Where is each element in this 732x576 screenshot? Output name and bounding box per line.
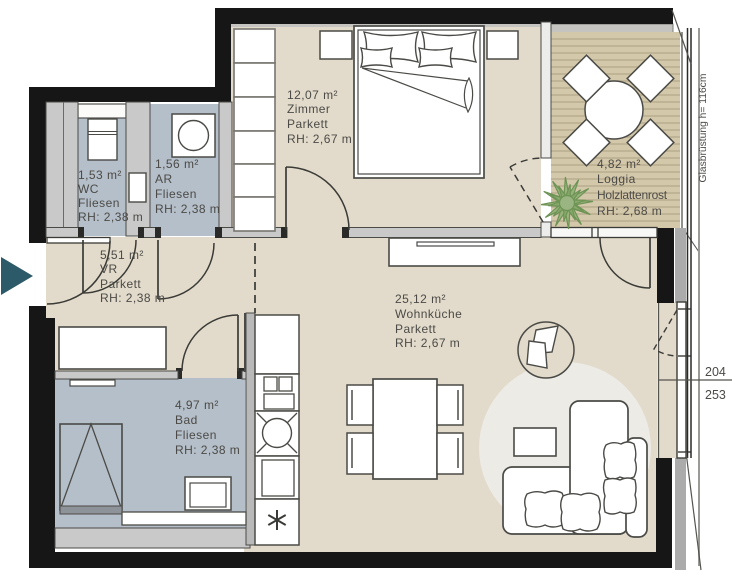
svg-text:WC: WC — [78, 182, 99, 196]
svg-text:4,97 m²: 4,97 m² — [175, 398, 219, 412]
svg-text:Parkett: Parkett — [287, 117, 328, 131]
svg-text:RH: 2,67 m: RH: 2,67 m — [395, 336, 460, 350]
svg-text:Loggia: Loggia — [597, 172, 636, 186]
svg-text:Fliesen: Fliesen — [155, 187, 197, 201]
svg-text:Wohnküche: Wohnküche — [395, 307, 462, 321]
svg-text:Fliesen: Fliesen — [78, 196, 120, 210]
svg-text:RH: 2,38 m: RH: 2,38 m — [155, 202, 220, 216]
svg-text:25,12 m²: 25,12 m² — [395, 292, 446, 306]
svg-text:RH: 2,38 m: RH: 2,38 m — [100, 291, 165, 305]
svg-text:VR: VR — [100, 262, 118, 276]
svg-text:RH: 2,68 m: RH: 2,68 m — [597, 204, 662, 218]
svg-text:RH: 2,38 m: RH: 2,38 m — [175, 443, 240, 457]
svg-text:5,51 m²: 5,51 m² — [100, 248, 144, 262]
svg-text:1,53 m²: 1,53 m² — [78, 168, 122, 182]
svg-text:Parkett: Parkett — [395, 322, 436, 336]
svg-text:Parkett: Parkett — [100, 277, 141, 291]
svg-text:Glasbrüstung h= 116cm: Glasbrüstung h= 116cm — [698, 74, 709, 183]
svg-text:RH: 2,38 m: RH: 2,38 m — [78, 210, 143, 224]
svg-text:Bad: Bad — [175, 413, 198, 427]
svg-text:4,82 m²: 4,82 m² — [597, 157, 641, 171]
svg-text:Zimmer: Zimmer — [287, 102, 330, 116]
svg-text:RH: 2,67 m: RH: 2,67 m — [287, 132, 352, 146]
svg-text:253: 253 — [705, 388, 726, 402]
svg-text:204: 204 — [705, 365, 726, 379]
svg-text:Fliesen: Fliesen — [175, 428, 217, 442]
svg-text:Holzlattenrost: Holzlattenrost — [597, 188, 668, 202]
svg-text:1,56 m²: 1,56 m² — [155, 157, 199, 171]
svg-text:AR: AR — [155, 172, 173, 186]
svg-text:12,07 m²: 12,07 m² — [287, 88, 338, 102]
